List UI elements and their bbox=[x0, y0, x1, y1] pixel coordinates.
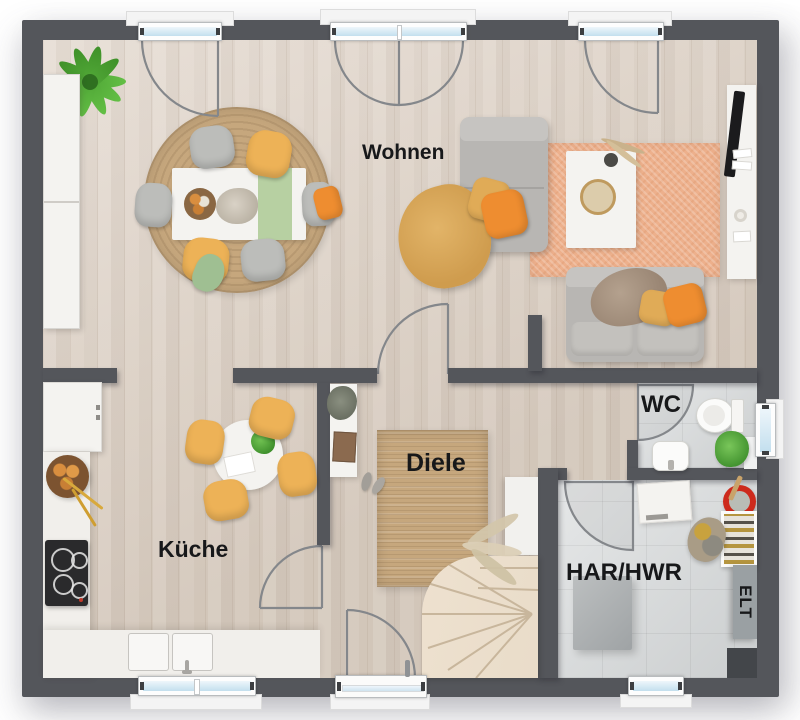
cooktop-indicator bbox=[79, 598, 83, 602]
window-hinge bbox=[140, 682, 144, 689]
window-mullion bbox=[194, 679, 200, 695]
window-door-swing-3 bbox=[585, 40, 658, 113]
sink-basin bbox=[128, 633, 169, 671]
sofa-backrest bbox=[460, 117, 548, 141]
window-glass bbox=[583, 27, 659, 36]
har-door-swing bbox=[565, 482, 633, 550]
notebook bbox=[223, 451, 256, 478]
window-sill bbox=[620, 694, 692, 708]
window-hinge bbox=[216, 28, 220, 35]
dried-plant bbox=[460, 503, 524, 593]
elt-panel: ELT bbox=[733, 565, 757, 639]
window-hinge bbox=[332, 28, 336, 35]
seat-cushion bbox=[571, 322, 633, 356]
wall-har-west bbox=[538, 468, 558, 678]
decor-tray bbox=[580, 179, 616, 215]
toilet-tank bbox=[731, 399, 744, 433]
tv-lowboard bbox=[727, 85, 756, 279]
window-sill bbox=[130, 694, 262, 710]
room-label-wohnen: Wohnen bbox=[362, 141, 444, 165]
living-room-door-swing bbox=[378, 304, 448, 374]
wc-sink bbox=[652, 441, 689, 471]
table-decor-plant bbox=[216, 188, 258, 224]
dining-chair-gray bbox=[187, 123, 236, 171]
table-runner bbox=[258, 168, 292, 240]
console-books bbox=[332, 431, 357, 462]
cooktop bbox=[45, 540, 88, 606]
palm-center bbox=[82, 74, 98, 90]
kitchen-door-swing bbox=[260, 546, 322, 608]
door-panel bbox=[342, 685, 424, 692]
window-hinge bbox=[678, 682, 682, 689]
books bbox=[733, 231, 752, 243]
window-hinge bbox=[461, 28, 465, 35]
window-terrace-3 bbox=[578, 22, 664, 41]
room-label-elt: ELT bbox=[735, 585, 755, 619]
washer-detail bbox=[646, 514, 668, 521]
fridge bbox=[43, 382, 102, 452]
burner bbox=[71, 552, 88, 569]
storage-box bbox=[573, 576, 632, 650]
toilet-bowl bbox=[696, 398, 734, 433]
seat-cushion bbox=[637, 322, 699, 356]
window-hinge bbox=[762, 451, 770, 455]
window-door-swing-1 bbox=[142, 40, 218, 116]
wall-living-south bbox=[448, 368, 757, 383]
wall-kitchen-dining bbox=[43, 368, 117, 383]
books bbox=[733, 148, 753, 159]
dining-chair-gray bbox=[134, 182, 174, 228]
dried-frond bbox=[461, 539, 522, 559]
centerpiece-bowl bbox=[184, 188, 216, 220]
decor-vase bbox=[604, 153, 618, 167]
window-glass bbox=[633, 681, 679, 691]
dining-table bbox=[172, 168, 306, 240]
door-handle bbox=[405, 660, 410, 677]
window-glass bbox=[760, 408, 771, 452]
floor-plan: ELT Wohnen Küche Diele W bbox=[0, 0, 800, 720]
faucet-base bbox=[182, 670, 192, 674]
wall-passage-stub bbox=[528, 315, 542, 371]
sink-basin bbox=[172, 633, 213, 671]
window-hinge bbox=[140, 28, 144, 35]
wc-faucet bbox=[668, 460, 674, 470]
window-glass bbox=[143, 27, 217, 36]
candle bbox=[734, 209, 747, 222]
entrance-door bbox=[335, 675, 427, 698]
sofa-two-seat bbox=[566, 267, 704, 362]
window-hwr bbox=[628, 676, 684, 696]
washing-machine bbox=[637, 480, 693, 524]
window-kitchen bbox=[138, 676, 256, 696]
window-hinge bbox=[630, 682, 634, 689]
room-label-kueche: Küche bbox=[158, 536, 228, 563]
fridge-handle bbox=[96, 415, 100, 420]
drying-rack bbox=[721, 511, 757, 567]
door-hinge bbox=[337, 682, 341, 690]
console-plant bbox=[327, 386, 357, 420]
room-label-diele: Diele bbox=[406, 449, 466, 478]
window-hinge bbox=[762, 405, 770, 409]
burner bbox=[71, 582, 88, 599]
wall-corner-niche bbox=[727, 648, 757, 678]
window-mullion bbox=[397, 25, 402, 40]
room-label-har-hwr: HAR/HWR bbox=[566, 559, 682, 587]
fridge-handle bbox=[96, 405, 100, 410]
hall-console bbox=[330, 384, 357, 477]
window-wc bbox=[755, 403, 776, 457]
books bbox=[732, 160, 753, 170]
window-terrace-double bbox=[330, 22, 467, 41]
toilet-seat bbox=[703, 405, 725, 426]
window-hinge bbox=[250, 682, 254, 689]
coffee-table bbox=[566, 151, 636, 248]
cabinet-divider bbox=[44, 201, 79, 203]
tall-cabinet bbox=[43, 74, 80, 329]
room-label-wc: WC bbox=[641, 391, 681, 419]
window-terrace-1 bbox=[138, 22, 222, 41]
window-door-swing-2 bbox=[335, 40, 463, 105]
dining-chair-gray bbox=[239, 237, 287, 283]
door-hinge bbox=[421, 682, 425, 690]
wall-hall-north bbox=[233, 368, 377, 383]
window-hinge bbox=[658, 28, 662, 35]
window-hinge bbox=[580, 28, 584, 35]
